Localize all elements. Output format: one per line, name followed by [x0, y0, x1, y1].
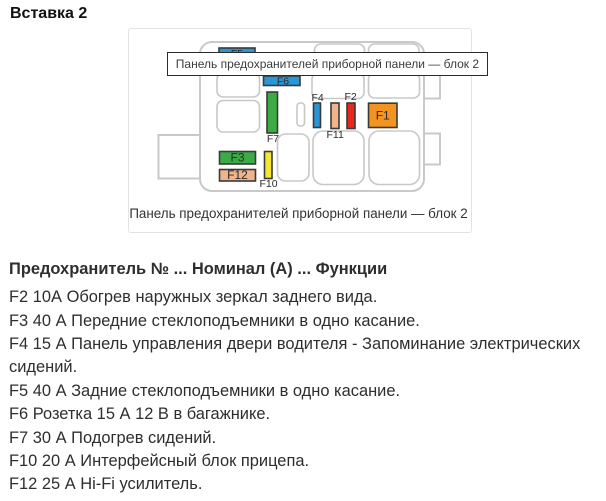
svg-text:F4: F4 — [312, 92, 324, 104]
svg-text:F3: F3 — [230, 151, 244, 165]
svg-text:F2: F2 — [345, 91, 357, 103]
svg-text:F7: F7 — [267, 133, 279, 145]
svg-text:F12: F12 — [227, 168, 248, 182]
svg-text:F1: F1 — [376, 109, 390, 123]
svg-text:F11: F11 — [327, 129, 344, 141]
svg-text:F10: F10 — [260, 178, 278, 190]
svg-text:F6: F6 — [277, 76, 289, 88]
